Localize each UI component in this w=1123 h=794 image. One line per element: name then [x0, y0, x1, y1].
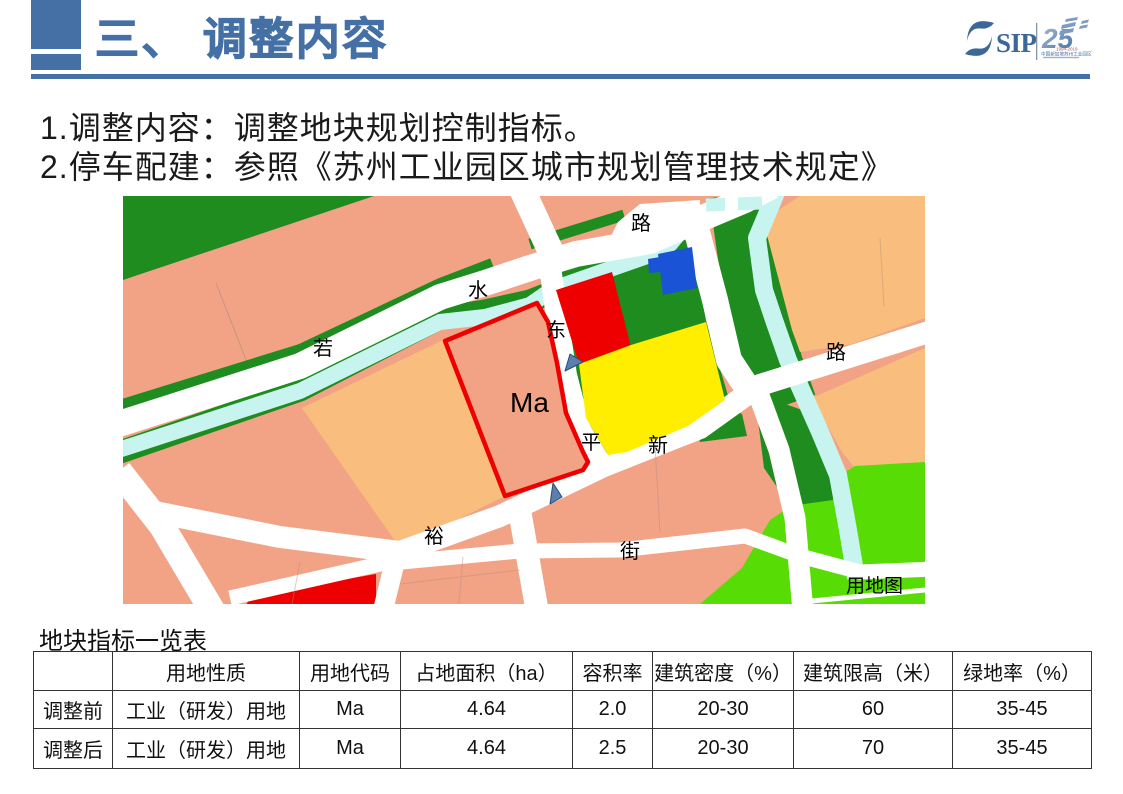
svg-text:SIP: SIP — [996, 28, 1037, 58]
svg-text:水: 水 — [468, 279, 488, 302]
svg-text:Ma: Ma — [510, 387, 549, 418]
svg-text:平: 平 — [581, 432, 601, 454]
svg-text:街: 街 — [620, 540, 640, 563]
svg-text:新: 新 — [648, 434, 668, 457]
svg-text:中国新加坡苏州工业园区: 中国新加坡苏州工业园区 — [1041, 51, 1092, 58]
svg-text:裕: 裕 — [424, 525, 444, 548]
svg-text:若: 若 — [313, 337, 333, 360]
svg-text:路: 路 — [826, 341, 846, 364]
svg-text:路: 路 — [631, 212, 651, 235]
svg-text:用地图: 用地图 — [846, 575, 903, 597]
svg-text:东: 东 — [546, 319, 566, 342]
